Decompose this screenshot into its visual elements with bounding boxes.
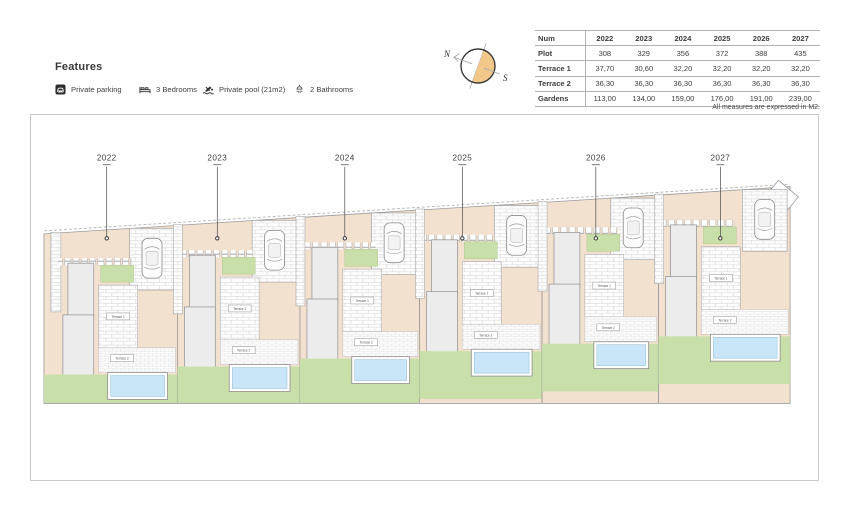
- terrace-2: [99, 348, 176, 373]
- terrace-2-label: Terrace 2: [602, 326, 615, 330]
- terrace-1-label: Terrace 1: [714, 277, 727, 281]
- table-cell: 36,30: [585, 76, 624, 91]
- plot-dot: [105, 237, 108, 240]
- terrace-1-label: Terrace 1: [598, 284, 611, 288]
- plot-group-2024: Terrace 1 Terrace 2: [300, 210, 420, 403]
- terrace-2-label: Terrace 2: [479, 333, 492, 337]
- table-cell: 134,00: [624, 91, 663, 106]
- terrace-2: [585, 317, 657, 342]
- plot-group-2026: Terrace 1 Terrace 2: [542, 195, 659, 403]
- plot-dot: [594, 237, 597, 240]
- table-cell: 36,30: [663, 76, 702, 91]
- garden-patch: [587, 234, 620, 251]
- features-heading: Features: [55, 61, 102, 73]
- table-row: Terrace 1 37,70 30,60 32,20 32,20 32,20 …: [535, 61, 820, 76]
- table-cell: 36,30: [624, 76, 663, 91]
- plot-label: 2022: [97, 154, 117, 163]
- terrace-2: [462, 324, 540, 349]
- site-plan-box: Terrace 1 Terrace 2 Terrace 1 Terrace 2: [30, 114, 819, 481]
- table-cell: 36,30: [742, 76, 781, 91]
- car-icon: [142, 238, 162, 278]
- legend-item-bathrooms: 2 Bathrooms: [294, 84, 353, 95]
- plot-group-2022: Terrace 1 Terrace 2: [44, 225, 177, 403]
- table-row: Terrace 2 36,30 36,30 36,30 36,30 36,30 …: [535, 76, 820, 91]
- bed-icon: [139, 84, 151, 95]
- table-row: Plot 308 329 356 372 388 435: [535, 46, 820, 61]
- table-cell: 32,20: [742, 61, 781, 76]
- plot-dot: [216, 237, 219, 240]
- plot-label: 2027: [710, 154, 730, 163]
- terrace-1-label: Terrace 1: [475, 292, 488, 296]
- legend-item-bedrooms: 3 Bedrooms: [139, 84, 197, 95]
- compass-north-label: N: [443, 49, 451, 59]
- table-header-row: Num 2022 2023 2024 2025 2026 2027: [535, 31, 820, 46]
- compass-icon: N S: [432, 30, 524, 100]
- car-icon: [623, 208, 643, 248]
- row-label: Gardens: [535, 91, 585, 106]
- column-header: 2022: [585, 31, 624, 46]
- plot-label: 2026: [586, 154, 606, 163]
- column-header: Num: [535, 31, 585, 46]
- house: [666, 277, 697, 339]
- terrace-1-label: Terrace 1: [356, 299, 369, 303]
- plot-group-2023: Terrace 1 Terrace 2: [177, 217, 300, 403]
- legend-item-label: 3 Bedrooms: [156, 85, 197, 94]
- terrace-2-label: Terrace 2: [116, 357, 129, 361]
- table-cell: 356: [663, 46, 702, 61]
- garden-patch: [101, 265, 134, 282]
- terrace-1-label: Terrace 1: [112, 315, 125, 319]
- parking-icon: [55, 84, 66, 95]
- house: [189, 255, 215, 310]
- plot-group-2027: Terrace 1 Terrace 2: [659, 180, 799, 403]
- table-cell: 30,60: [624, 61, 663, 76]
- legend-item-pool: Private pool (21m2): [202, 84, 285, 95]
- table-cell: 37,70: [585, 61, 624, 76]
- garden-patch: [222, 257, 255, 274]
- house: [426, 292, 457, 354]
- table-cell: 36,30: [702, 76, 741, 91]
- table-cell: 113,00: [585, 91, 624, 106]
- table-cell: 159,00: [663, 91, 702, 106]
- car-icon: [755, 200, 775, 240]
- house: [549, 284, 580, 346]
- house: [307, 299, 338, 361]
- column-header: 2027: [781, 31, 820, 46]
- house: [63, 315, 94, 377]
- terrace-2: [220, 340, 298, 365]
- legend-item-label: Private pool (21m2): [219, 85, 285, 94]
- terrace-2-label: Terrace 2: [360, 341, 373, 345]
- plot-group-2025: Terrace 1 Terrace 2: [420, 203, 543, 404]
- legend-item-label: 2 Bathrooms: [310, 85, 353, 94]
- terrace-2-label: Terrace 2: [237, 349, 250, 353]
- house: [184, 307, 215, 369]
- measurements-table: Num 2022 2023 2024 2025 2026 2027 Plot 3…: [535, 30, 820, 107]
- site-plan: Terrace 1 Terrace 2 Terrace 1 Terrace 2: [31, 115, 818, 480]
- house: [671, 225, 697, 280]
- column-header: 2023: [624, 31, 663, 46]
- plot-dot: [343, 237, 346, 240]
- table-cell: 308: [585, 46, 624, 61]
- plot-dot: [461, 237, 464, 240]
- column-header: 2026: [742, 31, 781, 46]
- table-cell: 32,20: [702, 61, 741, 76]
- terrace-2-label: Terrace 2: [718, 318, 731, 322]
- plot-label: 2023: [207, 154, 227, 163]
- table-cell: 435: [781, 46, 820, 61]
- plot-dot: [719, 237, 722, 240]
- house: [68, 263, 94, 318]
- legend-item-label: Private parking: [71, 85, 122, 94]
- car-icon: [265, 230, 285, 270]
- table-cell: 32,20: [663, 61, 702, 76]
- page: Features Private parking 3 Bedrooms: [0, 0, 850, 530]
- table-cell: 372: [702, 46, 741, 61]
- table-cell: 388: [742, 46, 781, 61]
- row-label: Terrace 2: [535, 76, 585, 91]
- legend-item-private-parking: Private parking: [55, 84, 122, 95]
- table-cell: 329: [624, 46, 663, 61]
- boundary-wall: [51, 232, 61, 312]
- column-header: 2024: [663, 31, 702, 46]
- car-icon: [384, 223, 404, 263]
- terrace-2: [343, 332, 418, 357]
- plot-label: 2025: [452, 154, 472, 163]
- column-header: 2025: [702, 31, 741, 46]
- pool-icon: [202, 84, 214, 95]
- garden-patch: [345, 249, 378, 266]
- row-label: Terrace 1: [535, 61, 585, 76]
- row-label: Plot: [535, 46, 585, 61]
- bathroom-icon: [294, 84, 305, 95]
- compass-south-label: S: [503, 73, 508, 83]
- garden-patch: [703, 227, 736, 244]
- house: [554, 232, 580, 287]
- table-cell: 32,20: [781, 61, 820, 76]
- terrace-1-label: Terrace 1: [233, 307, 246, 311]
- garden-patch: [464, 242, 497, 259]
- house: [312, 247, 338, 302]
- table-cell: 36,30: [781, 76, 820, 91]
- house: [431, 240, 457, 295]
- units-footnote: All measures are expressed in M2.: [712, 104, 820, 111]
- plot-label: 2024: [335, 154, 355, 163]
- car-icon: [507, 215, 527, 255]
